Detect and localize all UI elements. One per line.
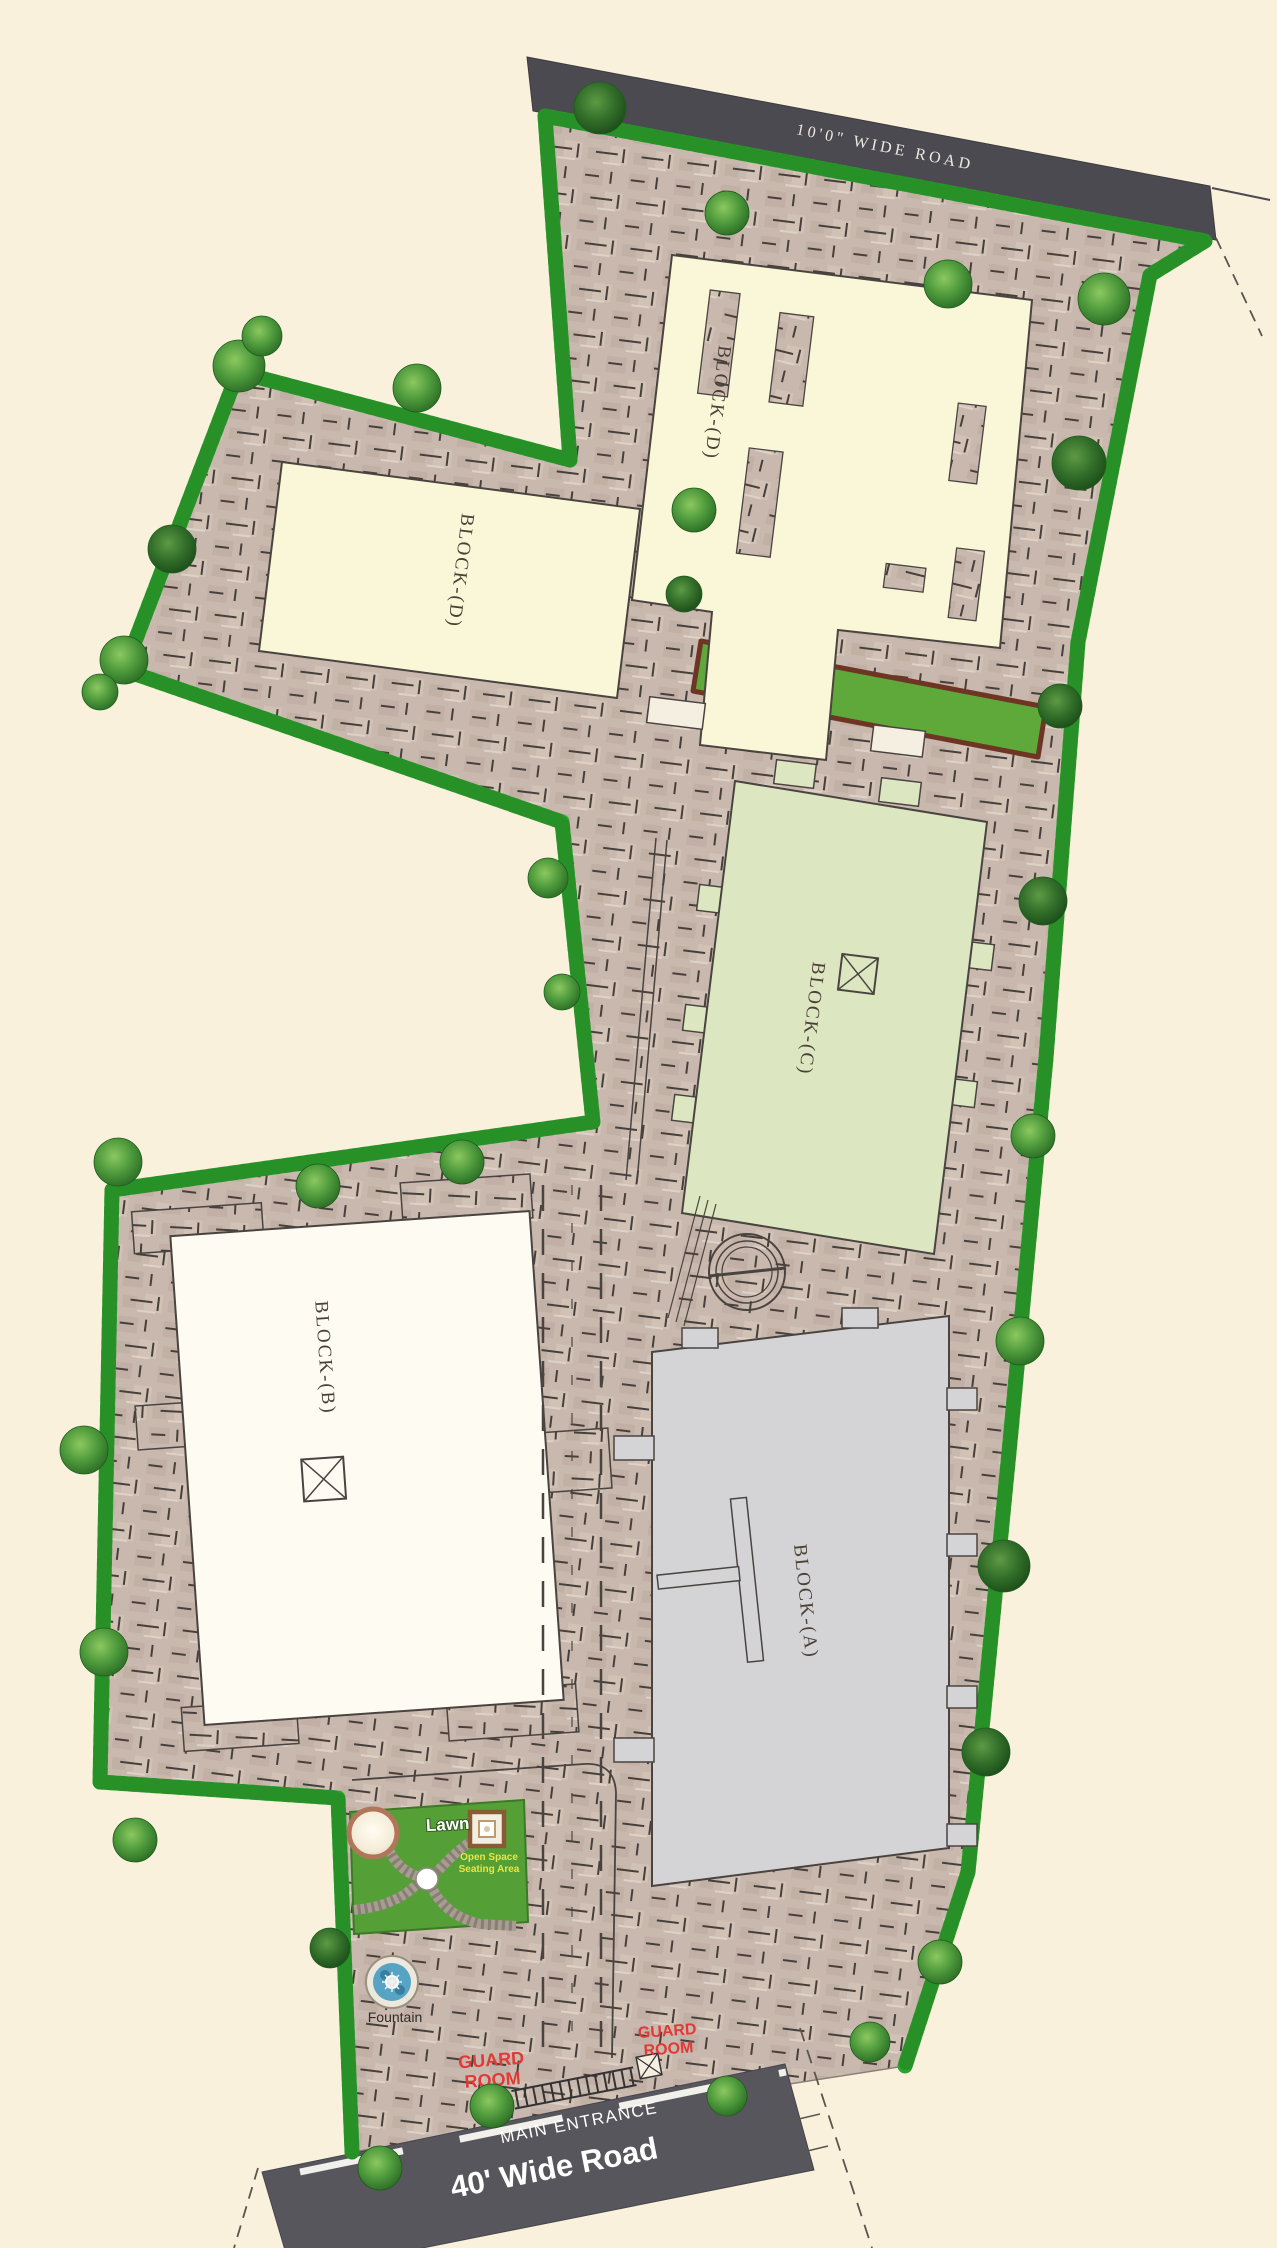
seating-pavilion-icon — [470, 1812, 504, 1846]
open-space-label-line2: Seating Area — [459, 1864, 520, 1875]
fountain: Fountain — [366, 1956, 422, 2025]
block-c-core-symbol — [838, 954, 878, 994]
tree-icon — [1019, 877, 1067, 925]
tree-icon — [393, 364, 441, 412]
tree-icon — [962, 1728, 1010, 1776]
tree-icon — [705, 191, 749, 235]
tree-icon — [296, 1164, 340, 1208]
tree-icon — [1078, 273, 1130, 325]
tree-icon — [148, 525, 196, 573]
lawn-mound — [349, 1809, 397, 1857]
tree-icon — [82, 674, 118, 710]
tree-icon — [850, 2022, 890, 2062]
tree-icon — [440, 1140, 484, 1184]
guard-room-right-line2: ROOM — [643, 2039, 694, 2059]
tree-icon — [358, 2146, 402, 2190]
tree-icon — [924, 260, 972, 308]
tree-icon — [996, 1317, 1044, 1365]
open-space-label-line1: Open Space — [460, 1852, 518, 1863]
block-a: BLOCK-(A) — [614, 1308, 977, 1886]
lawn-label: Lawn — [426, 1814, 470, 1835]
tree-icon — [528, 858, 568, 898]
guard-room-right-label: GUARD ROOM — [637, 2021, 698, 2060]
tree-icon — [1038, 684, 1082, 728]
fountain-label: Fountain — [368, 2009, 422, 2025]
block-c-outline — [682, 781, 987, 1254]
tree-icon — [1052, 436, 1106, 490]
tree-icon — [94, 1138, 142, 1186]
tree-icon — [574, 82, 626, 134]
tree-icon — [60, 1426, 108, 1474]
site-plan-page: 10'0" WIDE ROAD MAIN ENTRANCE 40' Wide R… — [0, 0, 1277, 2248]
site-plan-svg: 10'0" WIDE ROAD MAIN ENTRANCE 40' Wide R… — [0, 0, 1277, 2248]
block-b-core-symbol — [301, 1457, 346, 1502]
tree-icon — [672, 488, 716, 532]
lawn-area: Lawn Open Space Seating Area — [349, 1800, 528, 1934]
tree-icon — [113, 1818, 157, 1862]
fountain-spray — [382, 1972, 402, 1992]
tree-icon — [918, 1940, 962, 1984]
block-b-outline — [170, 1211, 563, 1725]
tree-icon — [310, 1928, 350, 1968]
tree-icon — [978, 1540, 1030, 1592]
tree-icon — [707, 2076, 747, 2116]
tree-icon — [666, 576, 702, 612]
path-junction-circle — [416, 1868, 438, 1890]
tree-icon — [1011, 1114, 1055, 1158]
tree-icon — [242, 316, 282, 356]
tree-icon — [80, 1628, 128, 1676]
tree-icon — [544, 974, 580, 1010]
tree-icon — [470, 2084, 514, 2128]
